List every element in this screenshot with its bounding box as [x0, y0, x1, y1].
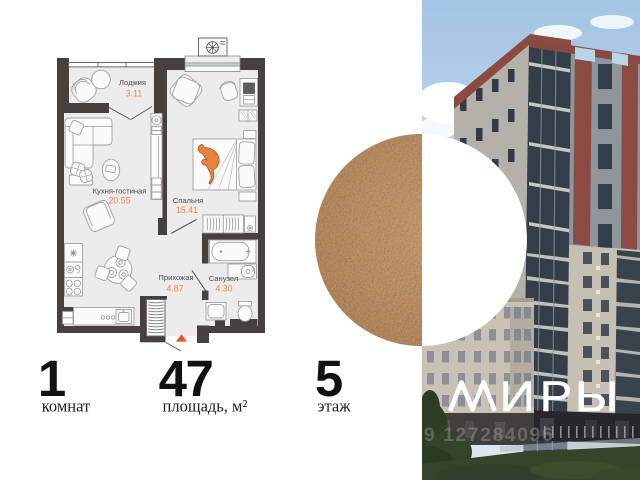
svg-text:Р: Р [540, 373, 573, 420]
svg-text:4.30: 4.30 [215, 283, 232, 293]
svg-text:Кухня-гостиная: Кухня-гостиная [93, 187, 147, 196]
svg-text:Лоджия: Лоджия [119, 78, 146, 87]
svg-text:4.87: 4.87 [166, 283, 183, 293]
svg-text:3.11: 3.11 [126, 88, 143, 98]
svg-text:Прихожая: Прихожая [158, 273, 193, 282]
svg-text:9 127284096: 9 127284096 [424, 424, 554, 446]
svg-text:Спальня: Спальня [173, 196, 204, 205]
svg-text:И: И [500, 373, 535, 420]
svg-text:15.41: 15.41 [176, 205, 198, 215]
svg-text:этаж: этаж [317, 397, 351, 416]
svg-text:комнат: комнат [42, 397, 91, 416]
svg-text:20.55: 20.55 [108, 195, 130, 205]
svg-text:площадь, м²: площадь, м² [163, 397, 248, 416]
svg-text:Ы: Ы [575, 373, 618, 420]
svg-text:Санузел: Санузел [209, 274, 239, 283]
